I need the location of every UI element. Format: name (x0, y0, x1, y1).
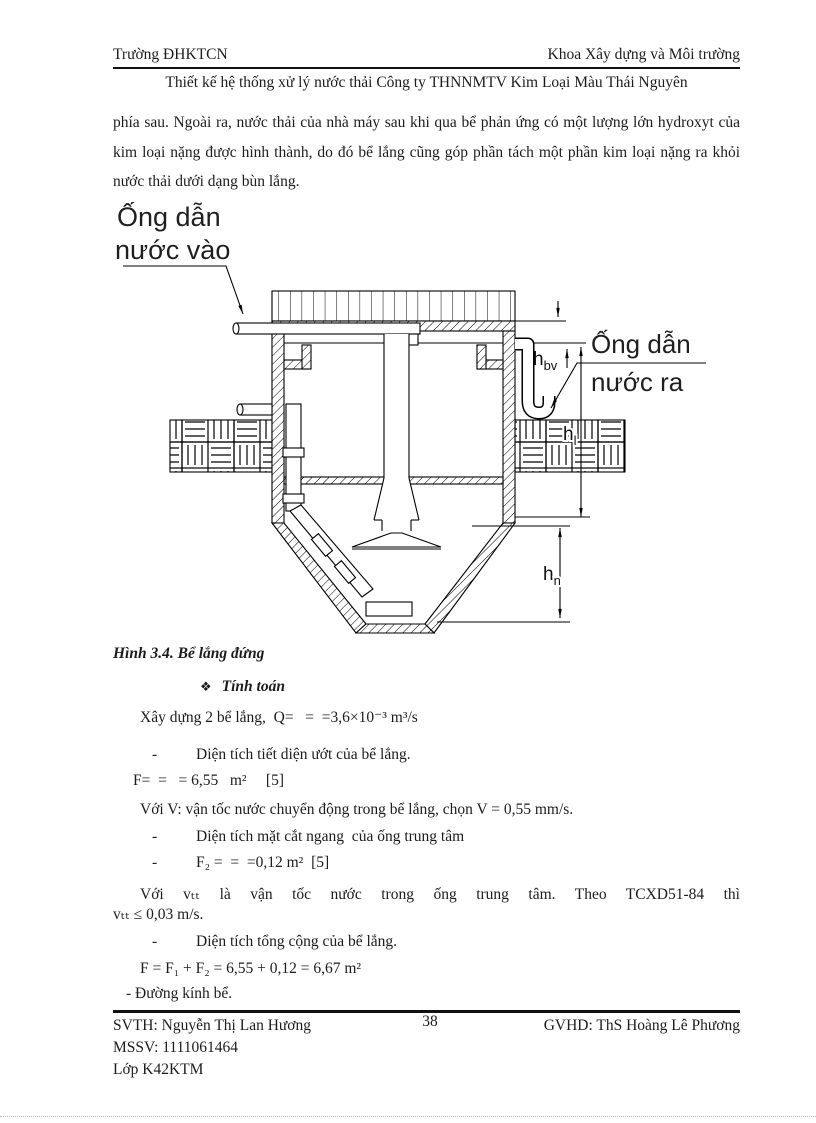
calc-line: Với V: vận tốc nước chuyển động trong bể… (113, 800, 740, 820)
footer-advisor: GVHD: ThS Hoàng Lê Phương (544, 1017, 740, 1035)
calc-line-text: vₜₜ ≤ 0,03 m/s. (113, 906, 203, 923)
ground-hatch-left (170, 420, 272, 472)
inlet-label-leader (123, 266, 243, 314)
calc-lines: Xây dựng 2 bể lắng, Q= = =3,6×10⁻³ m³/s-… (113, 708, 740, 1004)
calc-line: -Diện tích tổng cộng của bể lắng. (113, 932, 740, 952)
diamond-bullet-icon: ❖ (200, 680, 212, 695)
outlet-pipe (515, 344, 549, 413)
inlet-pipe-label-line2: nước vào (115, 235, 230, 265)
footer-author: SVTH: Nguyễn Thị Lan Hương (113, 1017, 311, 1035)
calc-line-text: Với vₜₜ là vận tốc nước trong ống trung … (140, 886, 740, 903)
collecting-trough-left (284, 345, 311, 369)
tank-wall-left (272, 331, 284, 523)
list-dash: - (152, 827, 196, 847)
deflector-plate (352, 533, 441, 547)
list-dash: - (152, 853, 196, 873)
calc-line: Với vₜₜ là vận tốc nước trong ống trung … (113, 885, 740, 905)
calc-line: - Đường kính bể. (113, 984, 740, 1004)
header-subtitle: Thiết kế hệ thống xử lý nước thải Công t… (113, 74, 740, 92)
calc-line-text: Với V: vận tốc nước chuyển động trong bể… (140, 801, 573, 818)
calc-line-text: Diện tích tổng cộng của bể lắng. (196, 933, 397, 950)
header-school: Trường ĐHKTCN (113, 46, 228, 64)
calc-line: -Diện tích tiết diện ướt của bể lắng. (113, 745, 740, 765)
calc-line: F = F₁ + F₂ = 6,55 + 0,12 = 6,67 m² (113, 959, 740, 979)
calc-heading: ❖Tính toán (200, 678, 285, 696)
calc-line-text: Xây dựng 2 bể lắng, Q= = =3,6×10⁻³ m³/s (140, 709, 418, 726)
page-bottom-dotted-line (0, 1116, 816, 1117)
calc-heading-text: Tính toán (222, 678, 285, 695)
inlet-pipe-label-line1: Ống dẫn (117, 200, 221, 232)
calc-line: -F₂ = = =0,12 m² [5] (113, 853, 740, 873)
central-tube (352, 334, 441, 549)
calc-line-text: - Đường kính bể. (126, 985, 232, 1002)
header-faculty: Khoa Xây dựng và Môi trường (548, 46, 740, 64)
top-grating (272, 291, 515, 321)
intro-paragraph: phía sau. Ngoài ra, nước thải của nhà má… (113, 108, 740, 197)
calc-line-text: F= = = 6,55 m² [5] (133, 772, 284, 789)
dim-label-hbv: hbv (533, 349, 558, 373)
calc-line-text: F = F₁ + F₂ = 6,55 + 0,12 = 6,67 m² (140, 960, 361, 977)
footer-page-number: 38 (405, 1013, 455, 1031)
outlet-pipe-label-line1: Ống dẫn (591, 329, 691, 359)
tank-wall-right (503, 331, 515, 523)
calc-line: vₜₜ ≤ 0,03 m/s. (113, 905, 740, 925)
list-dash: - (152, 932, 196, 952)
calc-line-text: F₂ = = =0,12 m² [5] (196, 854, 329, 871)
calc-line-text: Diện tích mặt cắt ngang của ống trung tâ… (196, 828, 464, 845)
calc-line: Xây dựng 2 bể lắng, Q= = =3,6×10⁻³ m³/s (113, 708, 740, 728)
cone-bottom-slab (356, 624, 434, 633)
document-page: Trường ĐHKTCN Khoa Xây dựng và Môi trườn… (0, 0, 816, 1123)
tank-structure (123, 266, 706, 633)
calc-line-text: Diện tích tiết diện ướt của bể lắng. (196, 746, 411, 763)
footer-class: Lớp K42KTM (113, 1061, 203, 1079)
collecting-trough-right (477, 345, 503, 369)
header-rule (113, 67, 740, 69)
figure-caption: Hình 3.4. Bể lắng đứng (113, 645, 264, 663)
footer-student-id: MSSV: 1111061464 (113, 1039, 238, 1057)
outlet-pipe-label-line2: nước ra (591, 367, 684, 397)
list-dash: - (152, 745, 196, 765)
calc-line: F= = = 6,55 m² [5] (113, 771, 740, 791)
calc-line: -Diện tích mặt cắt ngang của ống trung t… (113, 827, 740, 847)
settling-tank-diagram: Ống dẫn nước vào Ống dẫn nước ra hbv hl … (105, 195, 725, 655)
dim-label-hn: hn (543, 564, 561, 588)
cone-wall-right (425, 523, 515, 633)
